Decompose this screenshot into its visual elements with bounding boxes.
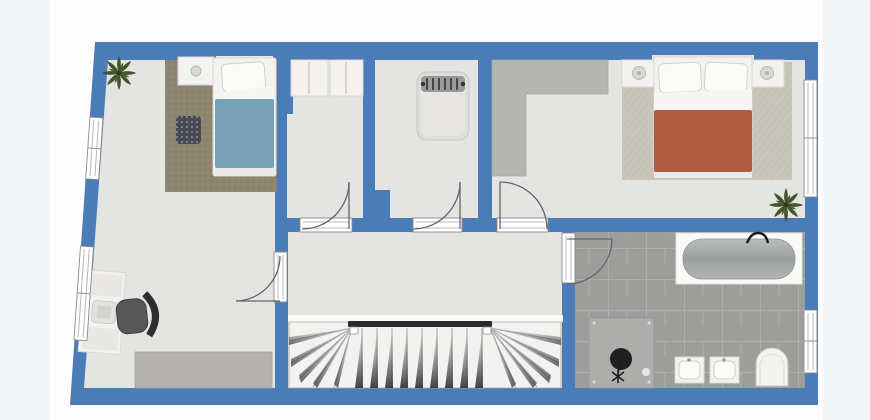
shower xyxy=(589,318,654,388)
door-frame-nursery xyxy=(413,218,462,232)
plant-master-room xyxy=(769,188,803,222)
shower-drain xyxy=(642,368,650,376)
nightstand-master-left xyxy=(622,60,656,87)
double-bed-pillow-right xyxy=(704,62,747,93)
handrail xyxy=(348,321,492,327)
floorplan-page xyxy=(0,0,870,420)
window-right-bedroom xyxy=(804,80,817,197)
sink-vanity-left xyxy=(675,357,704,383)
plant-left-room xyxy=(102,56,136,90)
bathtub xyxy=(676,233,802,284)
nursery-wall-stub xyxy=(375,190,390,218)
nightstand-left-room xyxy=(178,57,214,85)
double-bed xyxy=(652,55,754,178)
newel-post-right xyxy=(483,327,491,334)
floorplan-svg xyxy=(0,0,870,420)
double-bed-footboard xyxy=(654,172,752,178)
newel-post-left xyxy=(350,327,358,334)
ottoman xyxy=(176,116,201,144)
chair-seat xyxy=(115,298,148,335)
sink-basin xyxy=(679,361,700,379)
nightstand-master-right xyxy=(750,60,784,87)
toilet xyxy=(756,348,788,386)
staircase xyxy=(288,315,563,388)
double-bed-duvet xyxy=(654,110,752,172)
stair-landing-edge xyxy=(288,315,563,322)
window-right-bathroom xyxy=(804,310,817,373)
bathtub-basin xyxy=(683,239,795,279)
wardrobe-unit-a xyxy=(291,60,328,96)
door-frame-closet xyxy=(300,218,352,232)
sink-basin xyxy=(714,361,735,379)
nightstand-knob xyxy=(191,66,201,76)
door-frame-bathroom xyxy=(562,233,575,283)
crib xyxy=(417,72,469,140)
wardrobe-unit-b xyxy=(330,60,363,96)
dresser xyxy=(135,352,272,388)
sink-vanity-right xyxy=(710,357,739,383)
double-bed-pillow-left xyxy=(658,62,701,93)
single-bed-duvet xyxy=(215,99,274,168)
single-bed-footboard xyxy=(215,168,274,176)
single-bed xyxy=(213,56,276,176)
door-frame-master xyxy=(497,218,548,232)
